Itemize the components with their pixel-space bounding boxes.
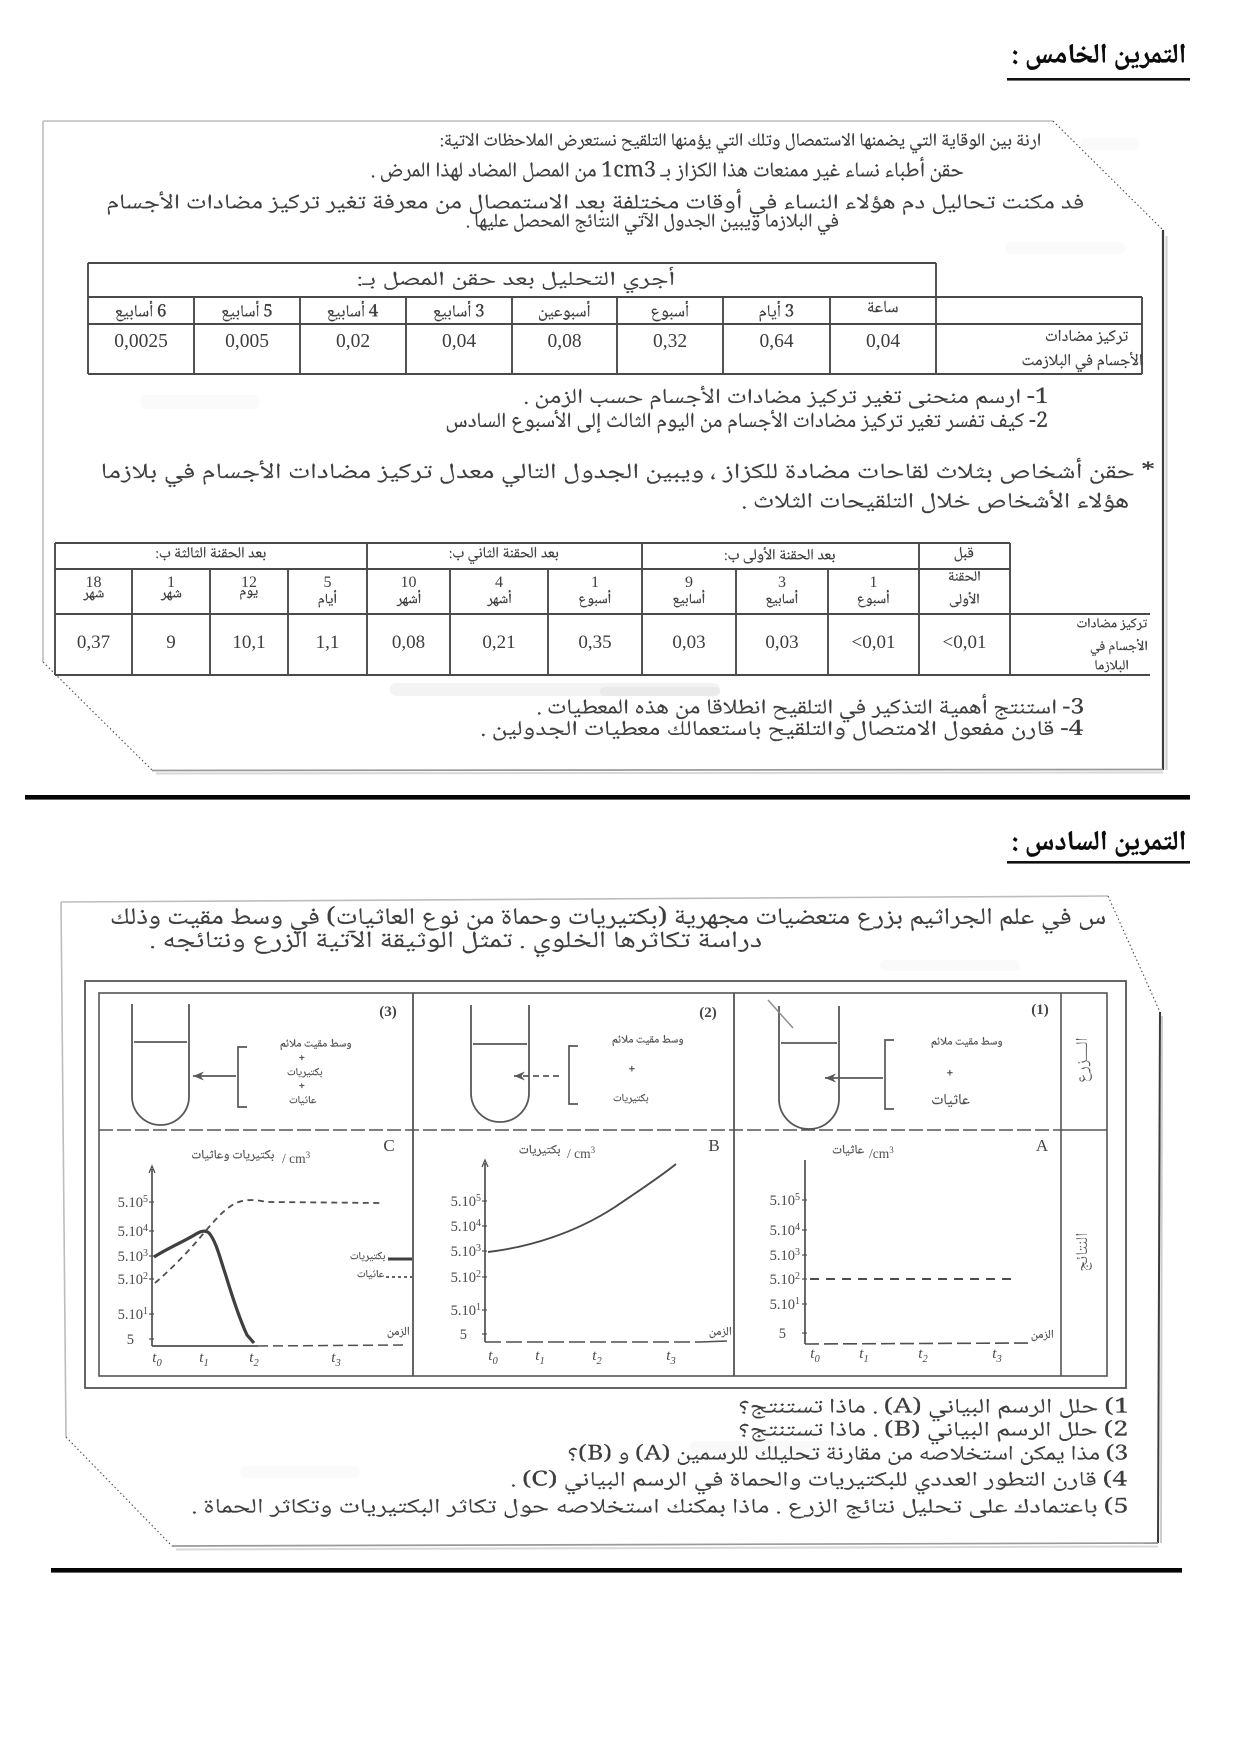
svg-text:0,005: 0,005: [225, 331, 269, 352]
svg-text:0,0025: 0,0025: [114, 331, 168, 352]
svg-text:0,02: 0,02: [336, 331, 370, 352]
svg-text:3: 3: [778, 574, 786, 591]
svg-text:(1): (1): [1031, 1002, 1049, 1018]
svg-text:5: 5: [460, 1327, 467, 1343]
svg-text:1: 1: [870, 574, 878, 591]
svg-text:1,1: 1,1: [316, 632, 340, 653]
svg-text:18: 18: [86, 574, 102, 591]
svg-text:0,32: 0,32: [653, 331, 687, 352]
svg-text:0,03: 0,03: [672, 632, 705, 653]
svg-text:0,03: 0,03: [765, 632, 798, 653]
svg-text:4: 4: [495, 574, 503, 591]
svg-text:5: 5: [324, 574, 332, 591]
svg-text:9: 9: [685, 574, 693, 591]
svg-text:0,37: 0,37: [77, 632, 110, 653]
svg-text:9: 9: [166, 632, 176, 653]
svg-text:0,08: 0,08: [392, 632, 425, 653]
svg-text:5: 5: [127, 1332, 134, 1348]
svg-text:0,08: 0,08: [547, 331, 581, 352]
svg-text:0,04: 0,04: [442, 331, 476, 352]
svg-text:C: C: [383, 1136, 394, 1155]
svg-text:0,04: 0,04: [866, 331, 900, 352]
svg-text:10: 10: [401, 574, 417, 591]
svg-text:5: 5: [779, 1326, 786, 1342]
svg-text:0,35: 0,35: [578, 632, 611, 653]
svg-text:<0,01: <0,01: [852, 632, 896, 653]
svg-text:12: 12: [241, 574, 257, 591]
svg-text:0,64: 0,64: [759, 331, 793, 352]
svg-text:10,1: 10,1: [232, 632, 265, 653]
svg-text:B: B: [708, 1136, 719, 1155]
svg-text:(3): (3): [379, 1004, 397, 1020]
svg-text:0,21: 0,21: [482, 632, 515, 653]
svg-text:(2): (2): [699, 1005, 717, 1021]
svg-text:1: 1: [591, 574, 599, 591]
svg-text:A: A: [1036, 1136, 1049, 1155]
svg-text:1: 1: [167, 574, 175, 591]
svg-text:<0,01: <0,01: [943, 632, 987, 653]
